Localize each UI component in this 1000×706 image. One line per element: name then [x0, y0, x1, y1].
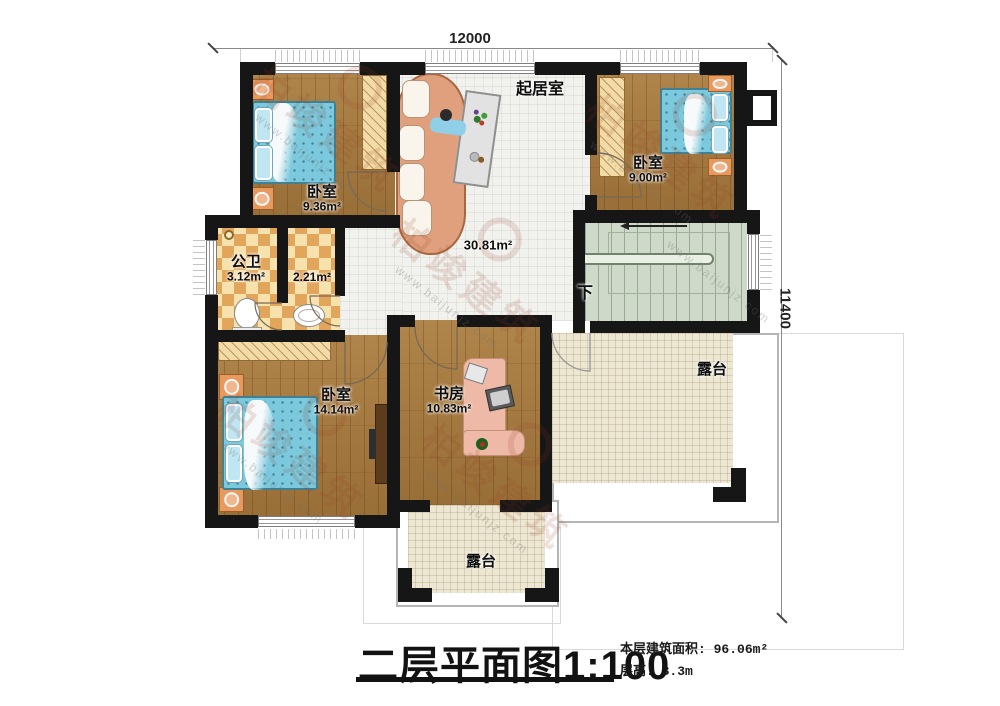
wardrobe [599, 77, 625, 177]
shower-head [224, 230, 234, 240]
wall [387, 62, 400, 172]
pillow [712, 126, 728, 153]
room-label-terrace-bottom: 露台 [466, 553, 496, 571]
pillow [226, 445, 242, 482]
nightstand [708, 158, 732, 176]
pillow [712, 94, 728, 121]
stair-handrail [577, 253, 714, 265]
wall [205, 342, 218, 515]
floor-height-info: 层高: 3.3m [620, 660, 693, 679]
dimension-line-top [213, 48, 773, 49]
wall [205, 330, 345, 342]
wall [205, 215, 400, 228]
terrace-pillar [525, 588, 559, 602]
sink [293, 304, 325, 327]
window [206, 240, 217, 295]
pillow [255, 108, 272, 142]
person-head [440, 109, 452, 121]
room-label-bathroom: 公卫 3.12m² [227, 253, 265, 284]
wall [734, 75, 747, 210]
wall [573, 223, 585, 333]
window [275, 63, 360, 74]
plant-flower [480, 442, 485, 447]
sofa-cushion [402, 200, 432, 236]
wall [387, 500, 430, 512]
wall [747, 290, 760, 333]
title-underline [356, 677, 614, 682]
wardrobe [362, 75, 387, 170]
wall [585, 75, 597, 155]
pillow [255, 146, 272, 180]
window [425, 63, 535, 74]
terrace-bottom-floor [408, 505, 545, 593]
window-sill [275, 50, 360, 62]
nightstand [250, 187, 274, 210]
window-sill [425, 50, 535, 62]
wall [400, 315, 415, 327]
dimension-line-right [781, 60, 782, 618]
room-label-bedroom-bl: 卧室 14.14m² [314, 386, 359, 417]
wall [540, 315, 552, 512]
wall [240, 62, 253, 228]
wall [590, 321, 760, 333]
pillow [226, 404, 242, 441]
living-area-label: 30.81m² [464, 239, 512, 254]
wall [355, 515, 400, 528]
floor-area-info: 本层建筑面积: 96.06m² [620, 638, 768, 657]
room-label-bedroom-tl: 卧室 9.36m² [303, 183, 341, 214]
dimension-tick [776, 54, 787, 65]
room-label-terrace-right: 露台 [697, 361, 727, 379]
wall [277, 228, 288, 303]
wall [535, 62, 620, 75]
wall [205, 515, 258, 528]
nightstand [250, 79, 274, 100]
window [258, 516, 355, 527]
window [748, 234, 759, 290]
window [620, 63, 700, 74]
desk-return [463, 430, 525, 456]
stairs-down-label: 下 [577, 285, 593, 303]
window-sill [193, 240, 205, 295]
floor-plan-page: 卧室 9.36m² 卧室 9.00m² 公卫 3.12m² 2.21m² 起居室… [0, 0, 1000, 706]
terrace-pillar [713, 487, 746, 502]
window-sill [620, 50, 700, 62]
wall [335, 228, 345, 296]
sofa-cushion [402, 80, 430, 118]
wardrobe [218, 340, 331, 361]
room-label-living: 起居室 [516, 81, 564, 99]
stair-arrow-line [627, 225, 687, 227]
wall [585, 195, 597, 210]
wall [573, 210, 747, 223]
wall [205, 228, 218, 240]
wall [700, 62, 747, 75]
sofa-cushion [399, 125, 425, 161]
tv [369, 429, 376, 459]
room-label-study: 书房 10.83m² [427, 385, 472, 416]
wall [387, 315, 400, 528]
nightstand [708, 75, 732, 92]
wall [747, 210, 760, 234]
sofa-cushion [399, 163, 425, 201]
toilet [234, 298, 260, 329]
bay-box-inner [753, 96, 771, 120]
room-label-bedroom-tr: 卧室 9.00m² [629, 154, 667, 185]
terrace-right-floor [552, 333, 733, 483]
extension-line [240, 48, 241, 62]
window-sill [760, 234, 772, 290]
terrace-pillar [398, 588, 432, 602]
window-sill [258, 529, 355, 539]
dimension-top-value: 12000 [430, 30, 510, 47]
wall [500, 500, 552, 512]
dimension-right-value: 11400 [777, 279, 794, 339]
wall [457, 315, 552, 327]
room-label-closet: 2.21m² [293, 271, 331, 285]
nightstand [219, 487, 244, 512]
